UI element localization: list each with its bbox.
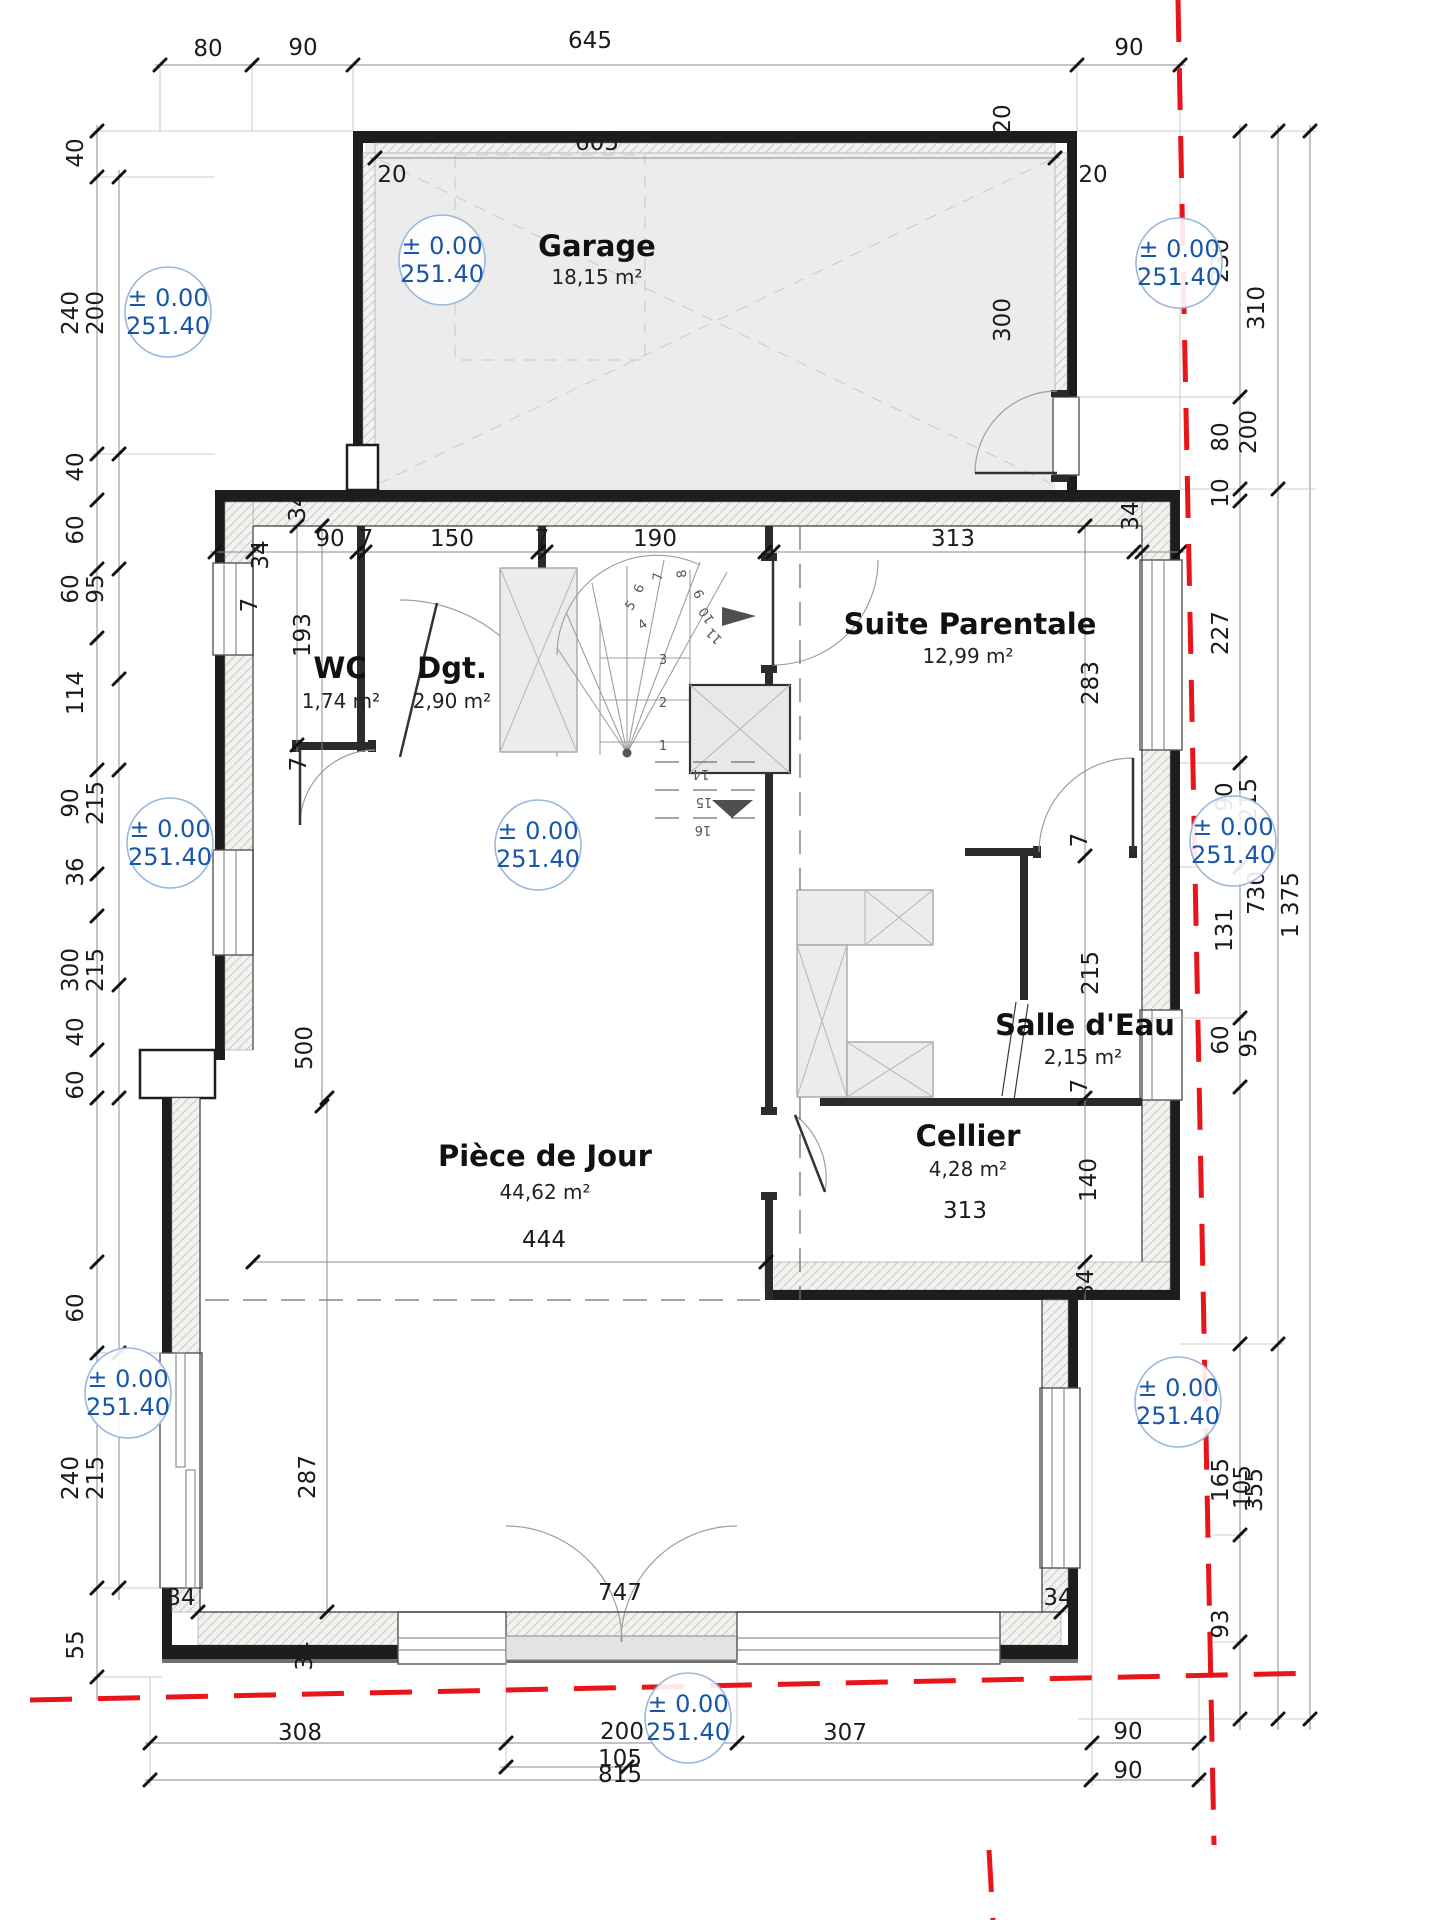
dimension-label: 215 <box>1078 951 1104 995</box>
stair-direction-arrow-up <box>722 607 756 626</box>
garage-wall-right-upper <box>1067 143 1077 397</box>
dimension-label: 60 <box>58 574 84 603</box>
dimension-label: 60 <box>1208 1025 1234 1054</box>
elevation-value: ± 0.00 <box>127 284 208 312</box>
dimension-label: 95 <box>83 574 109 603</box>
elevation-marker: ± 0.00251.40 <box>645 1673 731 1763</box>
room-area: 2,15 m² <box>1044 1045 1122 1069</box>
partition-cellier-hall <box>765 1192 773 1300</box>
dimension-label: 7 <box>286 757 312 772</box>
dimension-label: 40 <box>63 138 89 167</box>
dimension-label: 90 <box>1113 1719 1142 1745</box>
dimension-label: 815 <box>598 1762 642 1788</box>
dimension-label: 34 <box>1073 1269 1099 1298</box>
elevation-value: ± 0.00 <box>87 1365 168 1393</box>
dimension-label: 60 <box>63 1070 89 1099</box>
room-area: 12,99 m² <box>922 644 1013 668</box>
elevation-altitude: 251.40 <box>1136 1402 1220 1430</box>
dimension-label: 313 <box>931 526 975 552</box>
floor-plan-drawing: Garage18,15 m²WC1,74 m²Dgt.2,90 m²Suite … <box>0 0 1441 1920</box>
elevation-marker: ± 0.00251.40 <box>1190 796 1276 886</box>
partition-wc-bottom <box>300 742 370 750</box>
elevation-marker: ± 0.00251.40 <box>125 267 211 357</box>
garage-wall-left-insulation <box>363 153 375 490</box>
partition-salle-eau-left <box>1020 848 1028 1000</box>
room-name: Cellier <box>916 1119 1021 1153</box>
dimension-label: 34 <box>1043 1585 1072 1611</box>
pillar <box>347 445 378 490</box>
door-jamb <box>761 1192 777 1200</box>
dimension-label: 7 <box>1067 833 1093 848</box>
elevation-marker: ± 0.00251.40 <box>495 800 581 890</box>
stair-step-number: 5 <box>623 598 640 613</box>
interior-partitions <box>205 526 1142 1300</box>
dimension-label: 150 <box>430 526 474 552</box>
dimension-label: 34 <box>166 1585 195 1611</box>
dimension-label: 7 <box>359 526 374 552</box>
garage-wall-left <box>353 143 363 490</box>
dimension-label: 200 <box>83 291 109 335</box>
dimension-label: 90 <box>1114 35 1143 61</box>
dimension-label: 308 <box>278 1720 322 1746</box>
dimension-label: 131 <box>1212 908 1238 952</box>
dimension-label: 500 <box>292 1026 318 1070</box>
dimension-label: 34 <box>292 1641 318 1670</box>
dimension-label: 34 <box>285 492 311 521</box>
dimension-label: 80 <box>193 36 222 62</box>
stair-step-number: 7 <box>651 572 667 582</box>
stair-step-number: 11 <box>703 624 725 646</box>
dimension-label: 34 <box>248 540 274 569</box>
dimension-label: 90 <box>315 526 344 552</box>
stair-step-number: 1 <box>659 739 667 754</box>
elevation-value: ± 0.00 <box>1192 813 1273 841</box>
stair-step-number: 9 <box>691 587 708 601</box>
elevation-value: ± 0.00 <box>129 815 210 843</box>
dimension-label: 645 <box>568 28 612 54</box>
dimension-label: 605 <box>575 130 619 156</box>
room-name: Pièce de Jour <box>438 1139 653 1173</box>
stair-newel <box>623 749 632 758</box>
dimension-label: 20 <box>377 162 406 188</box>
elevation-altitude: 251.40 <box>1137 263 1221 291</box>
dimension-label: 7 <box>1067 1079 1093 1094</box>
stair-step-number: 4 <box>635 617 650 634</box>
garage-wall-top-insulation <box>375 143 1055 153</box>
dimension-label: 215 <box>83 948 109 992</box>
room-name: Garage <box>538 229 656 263</box>
dimension-label: 90 <box>1113 1758 1142 1784</box>
window-living-left <box>213 850 253 955</box>
stair-step-number: 16 <box>695 822 712 837</box>
dimension-label: 300 <box>990 298 1016 342</box>
garage-wall-top <box>353 131 1077 143</box>
elevation-marker: ± 0.00251.40 <box>127 798 213 888</box>
door-jamb <box>1033 846 1041 858</box>
elevation-value: ± 0.00 <box>497 817 578 845</box>
dimension-label: 444 <box>522 1227 566 1253</box>
dimension-label: 300 <box>58 948 84 992</box>
dimension-label: 240 <box>58 291 84 335</box>
dimension-label: 240 <box>58 1456 84 1500</box>
door-jamb <box>761 1107 777 1115</box>
elevation-marker: ± 0.00251.40 <box>399 215 485 305</box>
dimension-label: 40 <box>63 452 89 481</box>
elevation-altitude: 251.40 <box>1191 841 1275 869</box>
dimension-label: 287 <box>295 1455 321 1499</box>
dimension-label: 7 <box>535 526 550 552</box>
dimension-label: 200 <box>600 1719 644 1745</box>
dimension-label: 20 <box>990 104 1016 133</box>
elevation-value: ± 0.00 <box>647 1690 728 1718</box>
dimension-label: 60 <box>63 515 89 544</box>
dimension-label: 95 <box>1236 1028 1262 1057</box>
boundary-line-bottom-right <box>989 1850 993 1920</box>
wall-step-left <box>140 1050 215 1098</box>
stair-step-number: 3 <box>659 653 667 668</box>
wall-cellier-bottom-insulation <box>765 1262 1170 1290</box>
dimension-label: 7 <box>237 598 263 613</box>
elevation-value: ± 0.00 <box>1138 235 1219 263</box>
elevation-marker: ± 0.00251.40 <box>1136 218 1222 308</box>
dimension-label: 190 <box>633 526 677 552</box>
elevation-altitude: 251.40 <box>128 843 212 871</box>
floor-plan-page: Garage18,15 m²WC1,74 m²Dgt.2,90 m²Suite … <box>0 0 1441 1920</box>
dimension-label: 34 <box>1118 501 1144 530</box>
elevation-marker: ± 0.00251.40 <box>85 1348 171 1438</box>
dimension-label: 20 <box>1078 162 1107 188</box>
room-name: Suite Parentale <box>844 607 1097 641</box>
dimension-label: 140 <box>1076 1158 1102 1202</box>
dimension-label: 93 <box>1208 1609 1234 1638</box>
dimension-label: 215 <box>83 1456 109 1500</box>
dimension-label: 747 <box>598 1580 642 1606</box>
stair-step-number: 2 <box>659 696 667 711</box>
elevation-altitude: 251.40 <box>126 312 210 340</box>
garage-wall-right-insulation <box>1055 153 1067 397</box>
room-area: 4,28 m² <box>929 1157 1007 1181</box>
dimension-label: 40 <box>63 1017 89 1046</box>
door-jamb <box>761 665 777 673</box>
dimension-label: 114 <box>63 671 89 715</box>
dimension-label: 80 <box>1208 422 1234 451</box>
dimension-label: 227 <box>1208 611 1234 655</box>
room-area: 2,90 m² <box>413 689 491 713</box>
elevation-altitude: 251.40 <box>496 845 580 873</box>
garage-side-door-opening <box>1053 397 1079 475</box>
elevation-marker: ± 0.00251.40 <box>1135 1357 1221 1447</box>
wall-top-insulation <box>253 502 1142 526</box>
dimension-label: 313 <box>943 1198 987 1224</box>
stair-step-number: 8 <box>674 568 690 579</box>
dimension-label: 355 <box>1242 1468 1268 1512</box>
dimension-label: 200 <box>1236 410 1262 454</box>
window-living-right <box>1040 1388 1080 1568</box>
dimension-label: 36 <box>63 857 89 886</box>
room-area: 18,15 m² <box>551 265 642 289</box>
elevation-value: ± 0.00 <box>401 232 482 260</box>
room-area: 44,62 m² <box>499 1180 590 1204</box>
partition-wc-dgt <box>357 526 365 752</box>
dimension-label: 60 <box>63 1293 89 1322</box>
dimension-label: 310 <box>1244 286 1270 330</box>
elevation-altitude: 251.40 <box>86 1393 170 1421</box>
partition-cellier-top <box>820 1098 1142 1106</box>
room-name: WC <box>313 651 366 685</box>
room-name: Salle d'Eau <box>995 1008 1175 1042</box>
window-suite-door <box>1140 560 1182 750</box>
dimension-label: 10 <box>1208 478 1234 507</box>
stair-step-number: 15 <box>696 794 713 809</box>
wall-cellier-bottom <box>765 1290 1180 1300</box>
elevation-value: ± 0.00 <box>1137 1374 1218 1402</box>
elevation-altitude: 251.40 <box>400 260 484 288</box>
stair-step-number: 6 <box>631 582 648 595</box>
dimension-label: 90 <box>58 788 84 817</box>
dimension-label: 283 <box>1078 661 1104 705</box>
dimension-label: 1 375 <box>1278 872 1304 938</box>
garage-floor <box>365 143 1055 490</box>
dimension-label: 193 <box>290 613 316 657</box>
dimension-label: 215 <box>83 781 109 825</box>
wall-top <box>215 490 1180 502</box>
room-area: 1,74 m² <box>302 689 380 713</box>
elevation-altitude: 251.40 <box>646 1718 730 1746</box>
door-jamb <box>1051 475 1069 482</box>
garage-structure <box>347 131 1079 490</box>
partition-salle-eau-top <box>965 848 1039 856</box>
room-name: Dgt. <box>417 651 487 685</box>
dimension-label: 90 <box>288 35 317 61</box>
staircase <box>557 555 790 818</box>
dimension-label: 307 <box>823 1720 867 1746</box>
stair-step-number: 14 <box>693 766 710 781</box>
dimension-label: 55 <box>63 1630 89 1659</box>
stair-direction-arrow-down <box>712 800 753 818</box>
